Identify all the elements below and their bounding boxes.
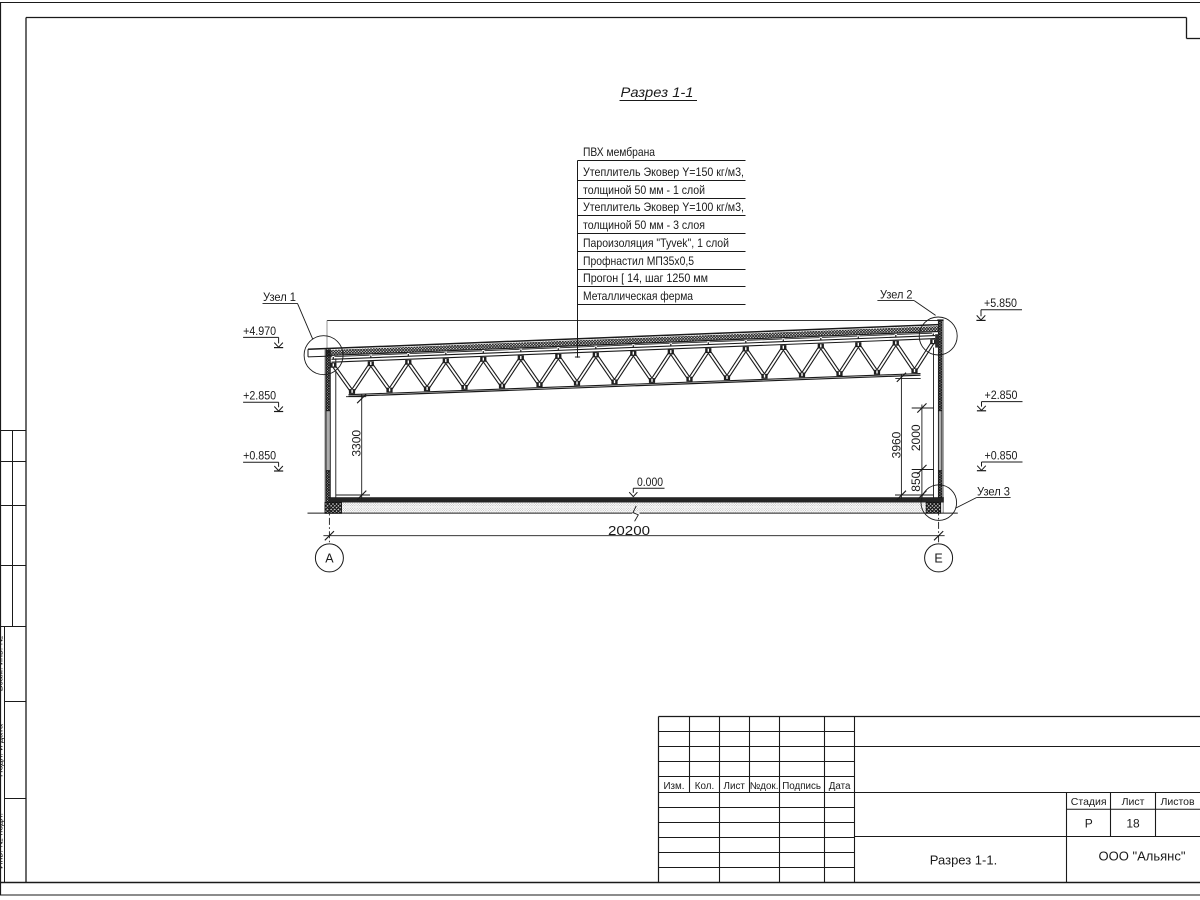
svg-text:850: 850 [909,471,923,491]
svg-text:Подпись: Подпись [782,781,821,792]
svg-text:№док.: №док. [750,781,779,792]
svg-text:Прогон [ 14, шаг 1250 мм: Прогон [ 14, шаг 1250 мм [583,271,708,285]
svg-text:20200: 20200 [608,524,650,538]
svg-text:Дата: Дата [829,781,851,792]
svg-text:Узел 1: Узел 1 [263,292,296,304]
svg-text:Изм.: Изм. [664,781,685,792]
svg-text:Е: Е [934,551,942,565]
svg-text:+5.850: +5.850 [984,298,1017,310]
svg-text:Пароизоляция "Tyvek", 1 слой: Пароизоляция "Tyvek", 1 слой [583,236,729,250]
svg-text:ПВХ мембрана: ПВХ мембрана [583,145,655,159]
svg-text:Профнастил МП35х0,5: Профнастил МП35х0,5 [583,254,694,268]
svg-text:Листов: Листов [1160,796,1195,808]
svg-text:3960: 3960 [889,431,903,458]
svg-text:Лист: Лист [724,781,746,792]
svg-text:Узел 3: Узел 3 [977,486,1010,498]
svg-text:Разрез 1-1.: Разрез 1-1. [930,853,997,868]
svg-text:Металлическая ферма: Металлическая ферма [583,289,693,303]
svg-text:Кол.: Кол. [695,781,714,792]
svg-text:+0.850: +0.850 [985,450,1018,462]
svg-text:Стадия: Стадия [1071,796,1107,808]
svg-text:Узел 2: Узел 2 [880,290,913,302]
svg-text:Взам. инв. №: Взам. инв. № [0,635,4,691]
svg-text:Разрез 1-1: Разрез 1-1 [621,84,694,100]
svg-text:+4.970: +4.970 [243,326,276,338]
svg-text:Лист: Лист [1122,796,1145,808]
svg-text:А: А [325,551,334,565]
svg-text:+0.850: +0.850 [243,451,276,463]
svg-text:толщиной 50 мм - 3 слоя: толщиной 50 мм - 3 слоя [583,218,705,232]
svg-text:Утеплитель Эковер Y=100 кг/м3,: Утеплитель Эковер Y=100 кг/м3, [583,200,744,214]
svg-text:толщиной 50 мм - 1 слой: толщиной 50 мм - 1 слой [583,183,705,197]
svg-text:Р: Р [1085,817,1093,831]
svg-text:Утеплитель Эковер Y=150 кг/м3,: Утеплитель Эковер Y=150 кг/м3, [583,165,744,179]
svg-text:18: 18 [1126,817,1140,831]
svg-text:Инв. № подл.: Инв. № подл. [0,813,4,869]
svg-text:ООО "Альянс": ООО "Альянс" [1099,849,1186,864]
svg-text:2000: 2000 [909,424,923,451]
svg-text:3300: 3300 [349,430,363,457]
svg-text:+2.850: +2.850 [985,390,1018,402]
svg-text:+2.850: +2.850 [243,391,276,403]
svg-text:Подп. и дата: Подп. и дата [0,724,4,777]
svg-text:0.000: 0.000 [637,477,663,489]
